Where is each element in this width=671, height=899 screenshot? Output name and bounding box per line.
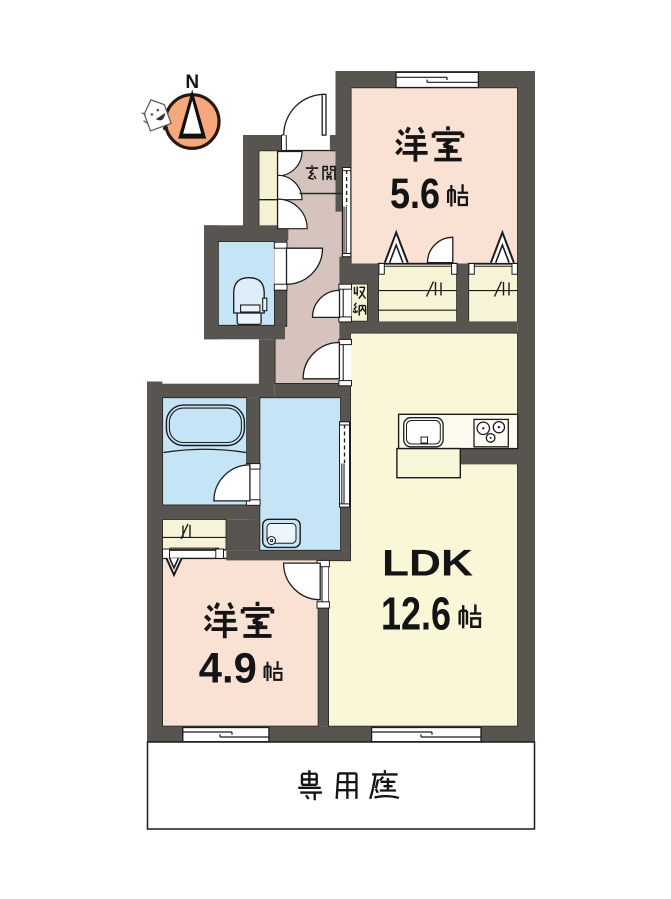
svg-text:12.6: 12.6 xyxy=(381,588,451,640)
svg-text:N: N xyxy=(185,72,199,93)
svg-text:5.6: 5.6 xyxy=(390,170,440,218)
svg-text:4.9: 4.9 xyxy=(199,645,257,693)
svg-text:LDK: LDK xyxy=(382,543,473,584)
